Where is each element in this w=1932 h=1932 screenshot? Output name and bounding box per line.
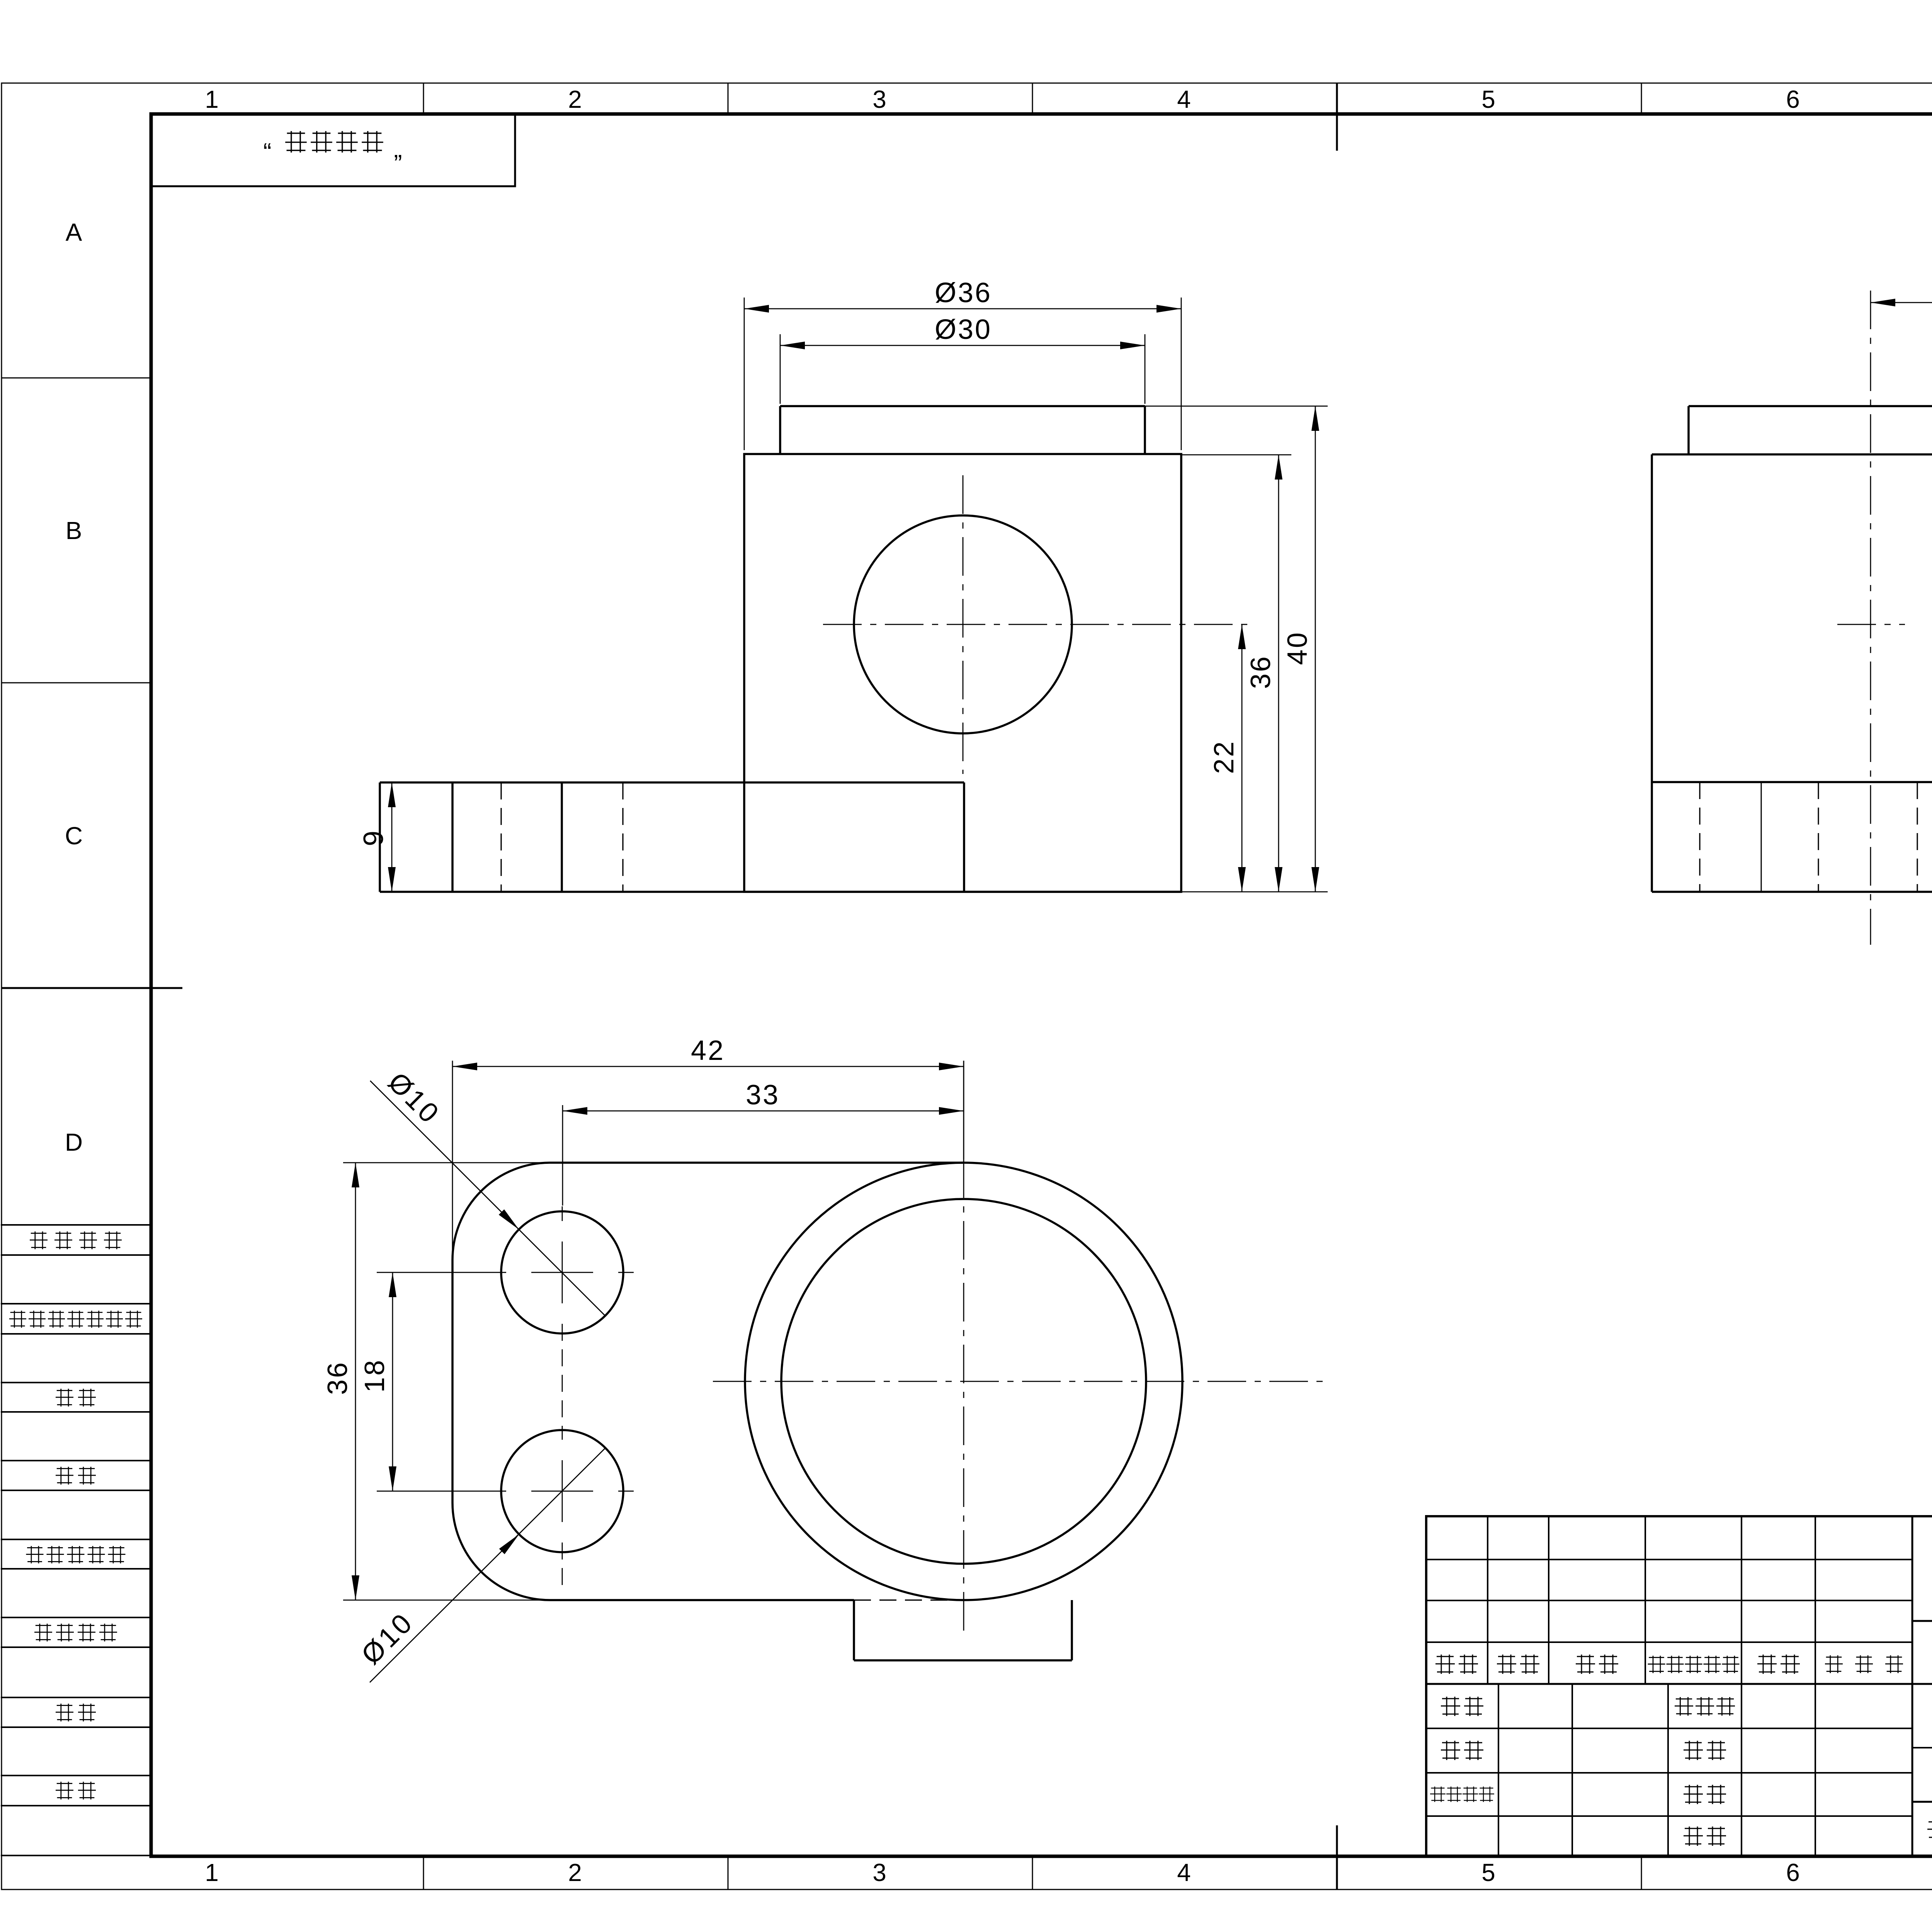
svg-text:4: 4 [1177, 1859, 1192, 1886]
svg-text:D: D [65, 1128, 84, 1156]
svg-text:“: “ [394, 138, 402, 166]
svg-text:B: B [66, 517, 84, 544]
svg-text:C: C [65, 822, 84, 850]
svg-text:40: 40 [1282, 631, 1313, 665]
svg-text:33: 33 [746, 1080, 780, 1111]
svg-text:Ø30: Ø30 [935, 314, 992, 345]
svg-text:9: 9 [358, 829, 389, 846]
svg-text:5: 5 [1481, 1859, 1497, 1886]
svg-text:5: 5 [1481, 85, 1497, 113]
svg-text:4: 4 [1177, 85, 1192, 113]
svg-text:1: 1 [205, 85, 220, 113]
svg-text:”: ” [263, 126, 271, 154]
svg-text:3: 3 [872, 85, 888, 113]
svg-text:A: A [66, 218, 84, 246]
svg-text:1: 1 [205, 1859, 220, 1886]
svg-text:2: 2 [568, 1859, 583, 1886]
svg-text:22: 22 [1209, 740, 1240, 774]
svg-text:Ø36: Ø36 [935, 277, 992, 308]
svg-text:3: 3 [872, 1859, 888, 1886]
svg-text:2: 2 [568, 85, 583, 113]
svg-text:6: 6 [1786, 1859, 1801, 1886]
svg-text:36: 36 [322, 1361, 353, 1395]
svg-text:6: 6 [1786, 85, 1801, 113]
svg-text:42: 42 [691, 1035, 725, 1066]
svg-text:18: 18 [359, 1359, 390, 1393]
svg-text:36: 36 [1245, 655, 1276, 689]
